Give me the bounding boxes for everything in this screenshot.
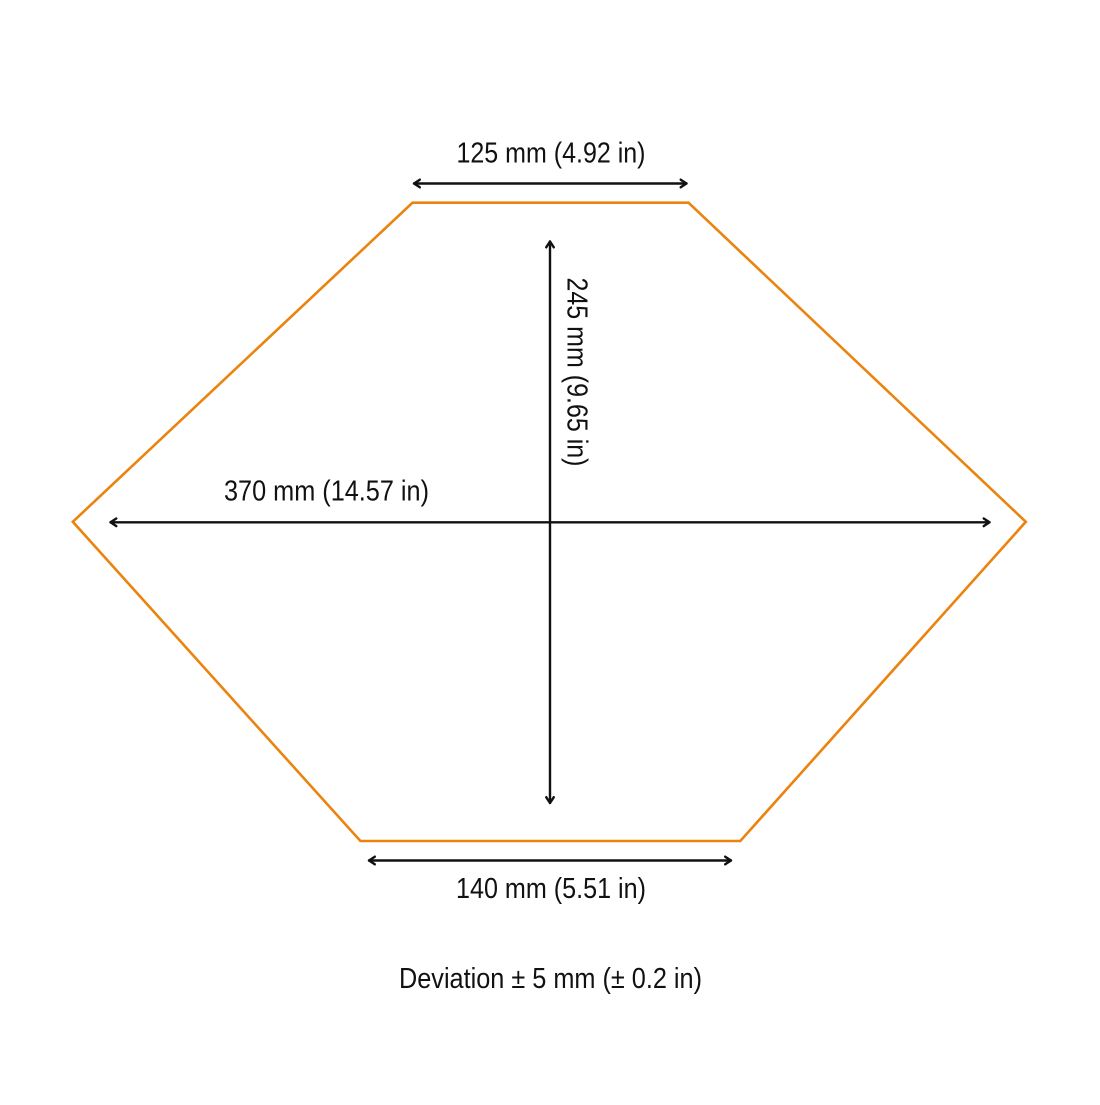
svg-text:125 mm (4.92 in): 125 mm (4.92 in)	[457, 138, 646, 170]
svg-text:370 mm (14.57 in): 370 mm (14.57 in)	[224, 476, 429, 508]
svg-text:140 mm (5.51 in): 140 mm (5.51 in)	[456, 873, 646, 905]
svg-text:Deviation ± 5 mm (± 0.2 in): Deviation ± 5 mm (± 0.2 in)	[399, 963, 702, 995]
svg-text:245 mm (9.65 in): 245 mm (9.65 in)	[561, 278, 593, 467]
